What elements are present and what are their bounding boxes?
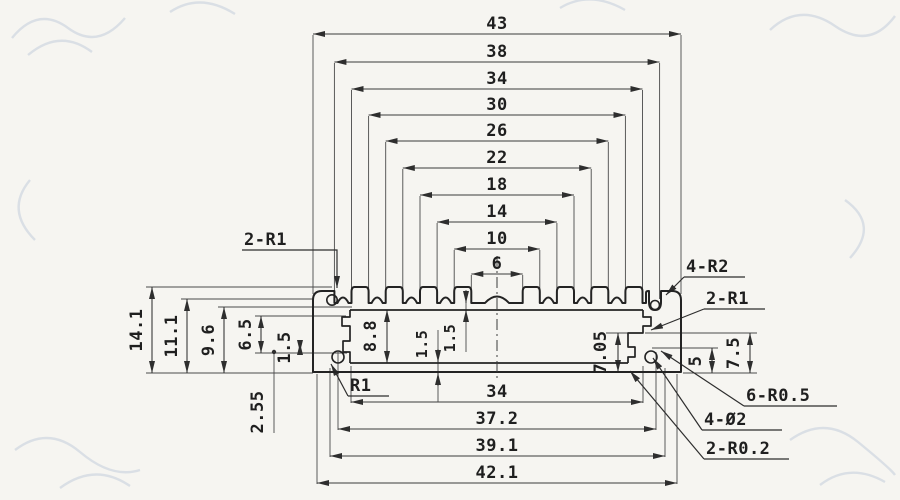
callout-2-r02-leader bbox=[630, 371, 704, 459]
dim-top-label-5: 22 bbox=[486, 148, 507, 168]
dim-inner-label-3: 7.05 bbox=[591, 331, 611, 374]
dim-inner-label-2: 1.5 bbox=[441, 324, 459, 353]
callout-2-r1-right-label: 2-R1 bbox=[706, 289, 749, 309]
dim-left-label-3: 6.5 bbox=[236, 318, 256, 350]
callout-4-dia2-leader bbox=[653, 358, 702, 430]
callout-4-r2-label: 4-R2 bbox=[686, 257, 729, 277]
dim-top-label-0: 43 bbox=[486, 14, 507, 34]
dim-top-label-2: 34 bbox=[486, 69, 507, 89]
screw-hole-top-right bbox=[651, 301, 660, 310]
callout-2-r1-right-leader bbox=[651, 309, 704, 330]
callout-2-r02-label: 2-R0.2 bbox=[706, 439, 770, 459]
dim-bottom-label-0: 34 bbox=[486, 382, 507, 402]
dim-top-label-4: 26 bbox=[486, 121, 507, 141]
dim-top-label-3: 30 bbox=[486, 95, 507, 115]
technical-drawing: 43383430262218141063437.239.142.114.111.… bbox=[0, 0, 900, 500]
drawing-sheet: 43383430262218141063437.239.142.114.111.… bbox=[0, 0, 900, 500]
dim-inner-label-1: 1.5 bbox=[413, 330, 431, 359]
dim-top-label-1: 38 bbox=[486, 42, 507, 62]
extension-lines bbox=[146, 35, 757, 484]
screw-hole-bottom-right bbox=[645, 351, 657, 363]
dim-top-label-8: 10 bbox=[486, 229, 507, 249]
dim-left-label-1: 11.1 bbox=[162, 315, 182, 358]
callout-r1-leader bbox=[331, 364, 348, 396]
dim-left-label-2: 9.6 bbox=[199, 324, 219, 356]
dim-top-label-7: 14 bbox=[486, 202, 507, 222]
dim-inner-label-0: 8.8 bbox=[361, 320, 381, 352]
right-boss-stepped-face bbox=[628, 310, 651, 363]
callout-4-dia2-label: 4-Ø2 bbox=[704, 410, 747, 430]
dim-right-label-0: 5 bbox=[686, 356, 706, 367]
dim-right-label-1: 7.5 bbox=[724, 337, 744, 369]
dim-left-label-4: 1.5 bbox=[275, 331, 295, 363]
dim-left-label-0: 14.1 bbox=[127, 309, 147, 352]
dim-bottom-label-2: 39.1 bbox=[476, 436, 519, 456]
dim-left-label-5: 2.55 bbox=[248, 391, 268, 434]
screw-hole-top-left bbox=[327, 295, 337, 305]
callout-r1-label: R1 bbox=[350, 376, 371, 396]
dim-top-label-9: 6 bbox=[492, 254, 503, 274]
watermark-squiggles bbox=[12, 0, 895, 488]
dim-bottom-label-3: 42.1 bbox=[476, 463, 519, 483]
callout-6-r05-label: 6-R0.5 bbox=[746, 386, 810, 406]
dim-top-label-6: 18 bbox=[486, 175, 507, 195]
dim-bottom-label-1: 37.2 bbox=[476, 409, 519, 429]
callout-2-r1-top-label: 2-R1 bbox=[244, 230, 287, 250]
callout-2-r1-top-leader bbox=[308, 250, 337, 288]
